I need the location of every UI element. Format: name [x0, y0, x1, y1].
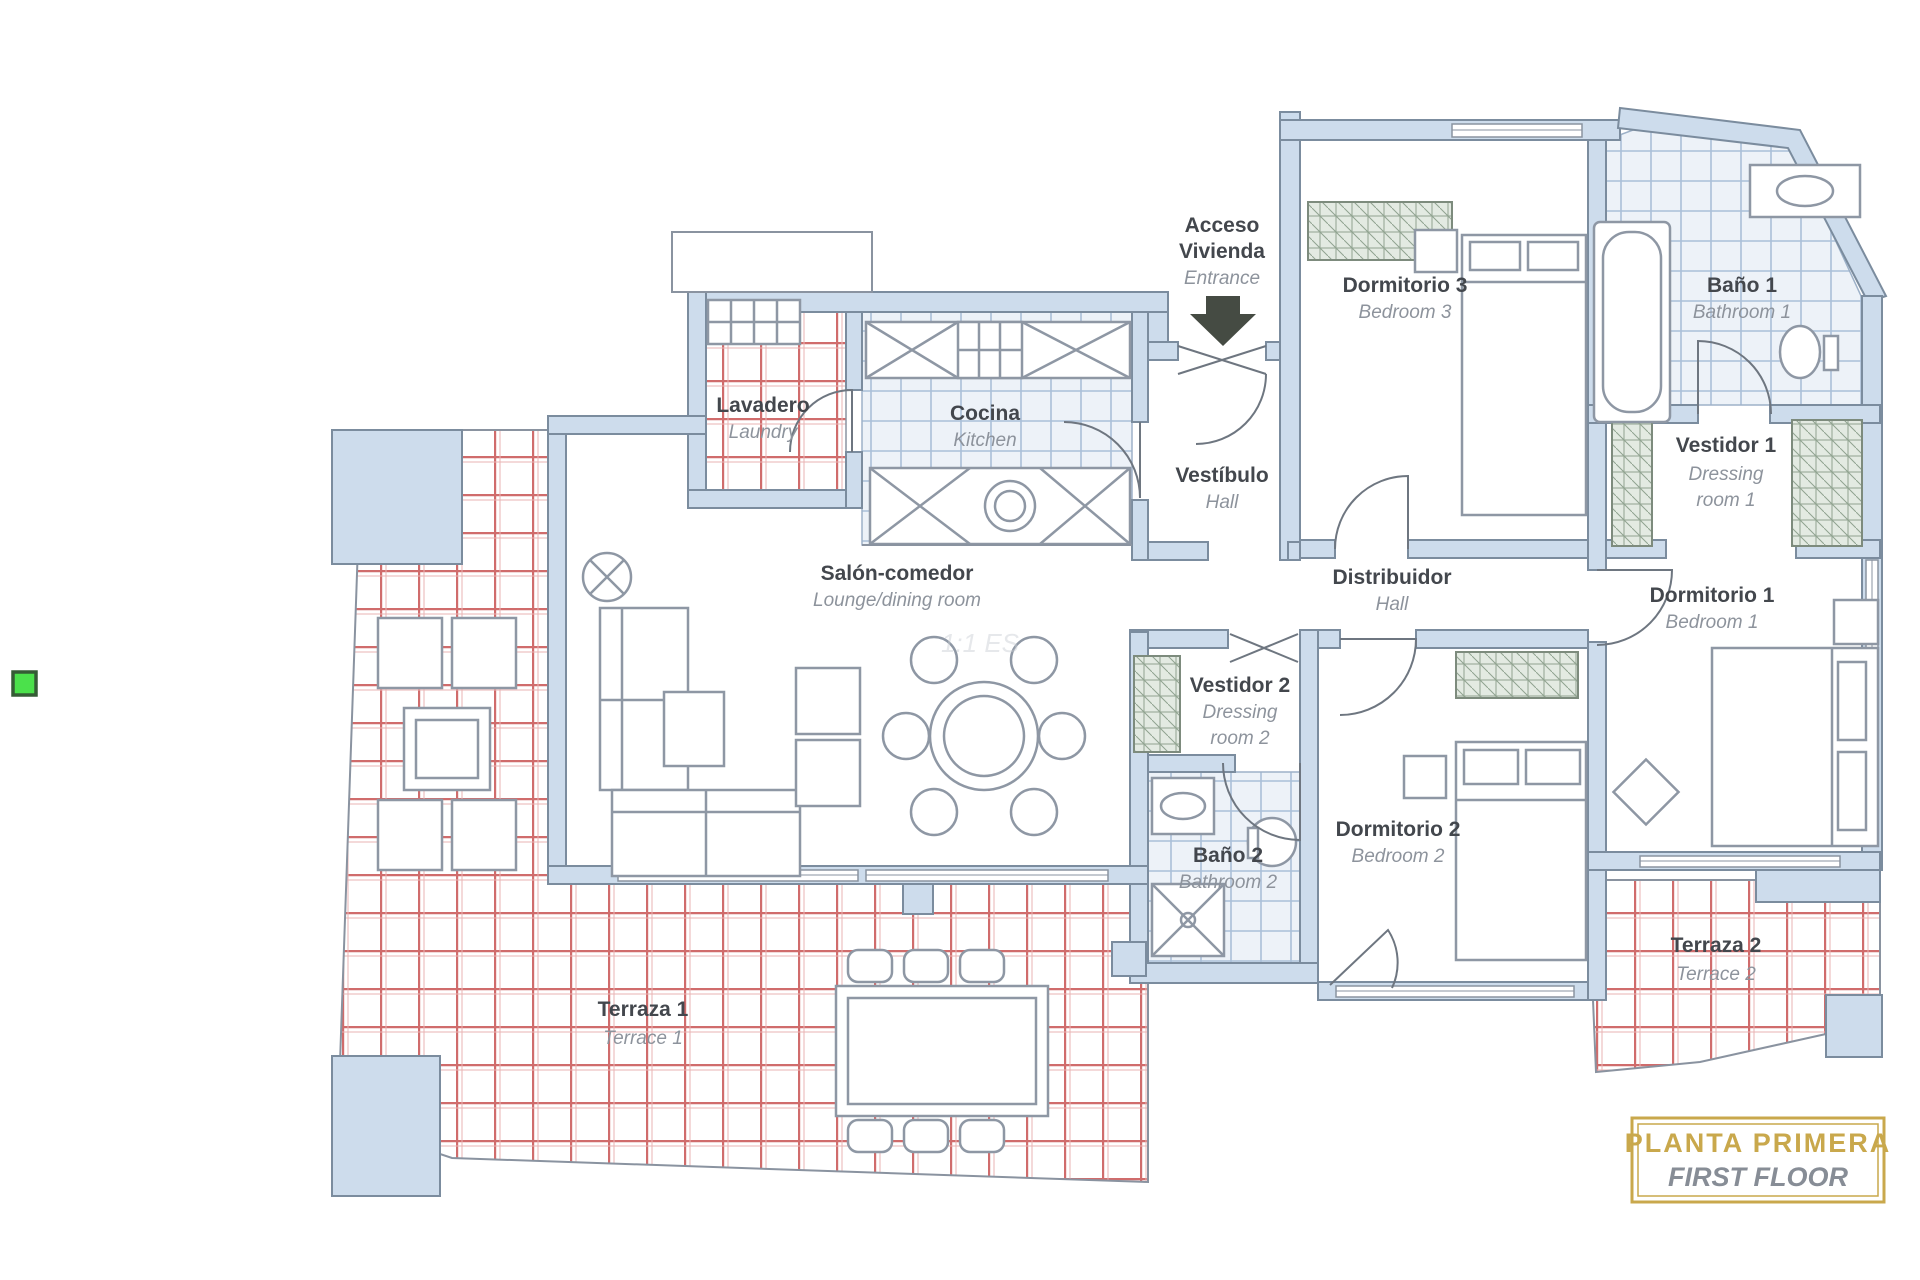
- label-dormitorio1-en: Bedroom 1: [1666, 612, 1759, 633]
- entrance-double-door: [1178, 346, 1266, 374]
- nightstand: [1415, 230, 1457, 272]
- label-distribuidor-en: Hall: [1376, 594, 1410, 615]
- label-vestidor1-es: Vestidor 1: [1676, 434, 1777, 457]
- terrace-chair: [452, 618, 516, 688]
- wardrobe-dressing-1-right: [1792, 420, 1862, 546]
- plan-title-en: FIRST FLOOR: [1668, 1162, 1848, 1192]
- label-bano2-es: Baño 2: [1193, 844, 1263, 867]
- label-salon-es: Salón-comedor: [821, 562, 974, 585]
- bathroom-1-sink: [1750, 165, 1860, 217]
- dining-table-round: [883, 637, 1085, 835]
- terrace-table: [836, 986, 1048, 1116]
- nightstand: [1404, 756, 1446, 798]
- label-acceso-2: Vivienda: [1179, 240, 1265, 263]
- bathroom-2-sink: [1152, 778, 1214, 834]
- ceiling-fan-icon: [583, 553, 631, 601]
- dining-chair: [1011, 789, 1057, 835]
- nightstand: [1834, 600, 1878, 644]
- title-box: PLANTA PRIMERA FIRST FLOOR: [1625, 1118, 1892, 1202]
- service-patio-outline: [672, 232, 872, 292]
- label-vestidor2-en2: room 2: [1210, 728, 1270, 749]
- armchair-2: [796, 740, 860, 806]
- door-arc-bedroom-3: [1335, 476, 1408, 549]
- plant-table: [1613, 759, 1678, 824]
- floor-plan-svg: Acceso Vivienda Entrance Dormitorio 3 Be…: [0, 0, 1920, 1280]
- terrace-chair: [960, 950, 1004, 982]
- coffee-table: [664, 692, 724, 766]
- terrace-chair: [904, 1120, 948, 1152]
- door-arc-bedroom-1: [1597, 570, 1672, 645]
- dressing-2-door: [1230, 634, 1298, 662]
- label-salon-en: Lounge/dining room: [813, 590, 981, 611]
- label-cocina-en: Kitchen: [953, 430, 1016, 451]
- label-vestidor2-en1: Dressing: [1203, 702, 1278, 723]
- terrace-chair: [452, 800, 516, 870]
- label-bano1-en: Bathroom 1: [1693, 302, 1791, 323]
- label-bano1-es: Baño 1: [1707, 274, 1777, 297]
- label-terraza1-es: Terraza 1: [598, 998, 689, 1021]
- label-vestidor1-en1: Dressing: [1689, 464, 1764, 485]
- label-acceso-1: Acceso: [1185, 214, 1260, 237]
- terrace-chair: [904, 950, 948, 982]
- terrace-door-bedroom-2: [1330, 930, 1398, 988]
- dining-chair: [911, 789, 957, 835]
- watermark: 1:1 ES: [941, 628, 1020, 658]
- wardrobe-dressing-1-left: [1612, 420, 1652, 546]
- terrace-chair: [848, 1120, 892, 1152]
- terrace-chair: [378, 800, 442, 870]
- terrace-chair: [848, 950, 892, 982]
- label-bano2-en: Bathroom 2: [1179, 872, 1278, 893]
- label-terraza2-es: Terraza 2: [1671, 934, 1762, 957]
- label-acceso-3: Entrance: [1184, 268, 1260, 289]
- terrace-chair: [378, 618, 442, 688]
- bed-bedroom-1: [1712, 600, 1878, 846]
- label-distribuidor-es: Distribuidor: [1333, 566, 1452, 589]
- label-terraza2-en: Terrace 2: [1676, 964, 1756, 985]
- kitchen-counter: [870, 468, 1130, 544]
- plan-title-es: PLANTA PRIMERA: [1625, 1128, 1892, 1158]
- shower-tray: [1152, 884, 1224, 956]
- label-vestibulo-en: Hall: [1206, 492, 1240, 513]
- floor-plan-page: Acceso Vivienda Entrance Dormitorio 3 Be…: [0, 0, 1920, 1280]
- kitchen-cabinets-top: [866, 322, 1130, 378]
- terrace-chair: [960, 1120, 1004, 1152]
- label-terraza1-en: Terrace 1: [603, 1028, 683, 1049]
- label-dormitorio2-es: Dormitorio 2: [1336, 818, 1461, 841]
- label-vestidor1-en2: room 1: [1696, 490, 1755, 511]
- bathtub: [1594, 222, 1670, 422]
- label-lavadero-en: Laundry: [729, 422, 799, 443]
- label-dormitorio2-en: Bedroom 2: [1352, 846, 1445, 867]
- wardrobe-bedroom-2: [1456, 652, 1578, 698]
- armchair-1: [796, 668, 860, 734]
- dining-chair: [1039, 713, 1085, 759]
- laundry-cupboard: [708, 300, 800, 344]
- label-dormitorio1-es: Dormitorio 1: [1650, 584, 1775, 607]
- entrance-arrow-icon: [1190, 296, 1256, 346]
- door-arc-bedroom-2: [1340, 639, 1416, 715]
- label-lavadero-es: Lavadero: [716, 394, 809, 417]
- door-arc-entrance: [1196, 374, 1266, 444]
- label-dormitorio3-en: Bedroom 3: [1359, 302, 1452, 323]
- wardrobe-dressing-2: [1134, 656, 1180, 752]
- sofa-bottom: [612, 790, 800, 876]
- label-dormitorio3-es: Dormitorio 3: [1343, 274, 1468, 297]
- green-marker: [13, 672, 36, 695]
- dining-chair: [883, 713, 929, 759]
- label-cocina-es: Cocina: [950, 402, 1020, 425]
- label-vestibulo-es: Vestíbulo: [1175, 464, 1268, 487]
- bed-bedroom-3: [1415, 230, 1586, 515]
- label-vestidor2-es: Vestidor 2: [1190, 674, 1290, 697]
